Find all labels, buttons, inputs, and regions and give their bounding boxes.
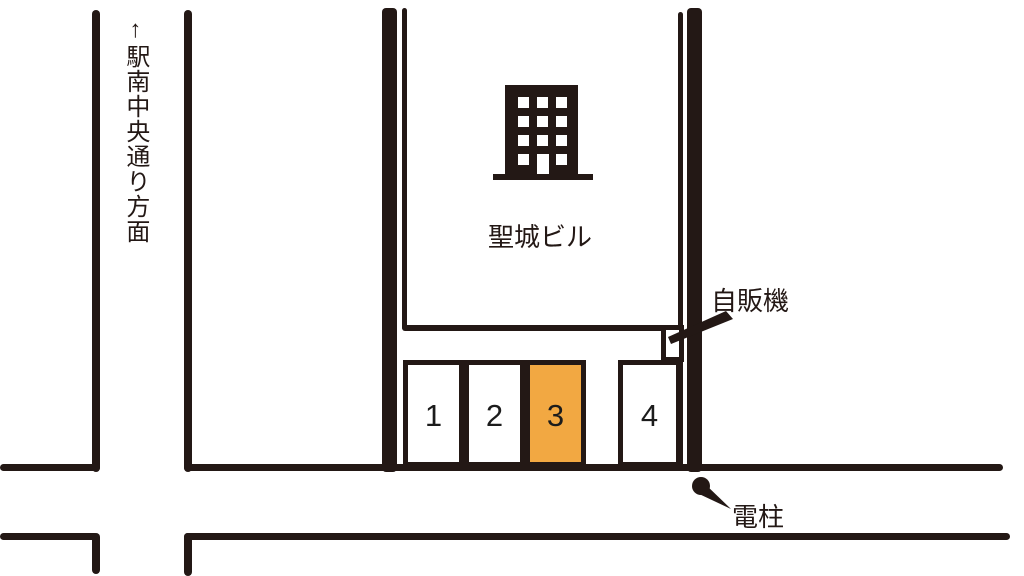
parking-space-4-number: 4 — [641, 396, 658, 431]
parking-space-3-highlighted: 3 — [525, 360, 586, 467]
parking-space-2-number: 2 — [486, 396, 503, 431]
road-left-street-west-edge — [92, 10, 100, 472]
parking-space-3-number: 3 — [547, 396, 564, 431]
road-bottom-street-south-edge-left — [0, 533, 98, 540]
utility-pole-dot-icon — [692, 477, 710, 495]
parking-space-1-number: 1 — [425, 396, 442, 431]
parcel-boundary-bottom — [402, 325, 683, 331]
road-left-street-east-edge — [184, 10, 192, 472]
parking-space-1: 1 — [403, 360, 464, 467]
road-parcel-west-edge — [382, 8, 397, 472]
parking-space-2: 2 — [464, 360, 525, 467]
utility-pole-pointer-icon — [697, 484, 731, 509]
road-bottom-street-south-edge-right — [184, 533, 1010, 540]
parking-space-4: 4 — [618, 360, 681, 467]
building-icon — [493, 85, 593, 180]
parking-lot-map: 1 2 3 4 ↑駅南中央通り方面 聖城ビル 自販機 電柱 — [0, 0, 1024, 576]
parcel-boundary-left — [402, 8, 407, 330]
road-bottom-street-north-edge-left — [0, 464, 100, 471]
vending-machine-label: 自販機 — [711, 281, 789, 318]
vending-machine-box — [661, 325, 684, 362]
road-bottom-street-north-edge-right — [184, 464, 1003, 471]
utility-pole-label: 電柱 — [732, 497, 784, 534]
street-direction-label: ↑駅南中央通り方面 — [122, 16, 148, 244]
road-parcel-east-edge — [687, 8, 702, 472]
building-name-label: 聖城ビル — [480, 217, 600, 254]
